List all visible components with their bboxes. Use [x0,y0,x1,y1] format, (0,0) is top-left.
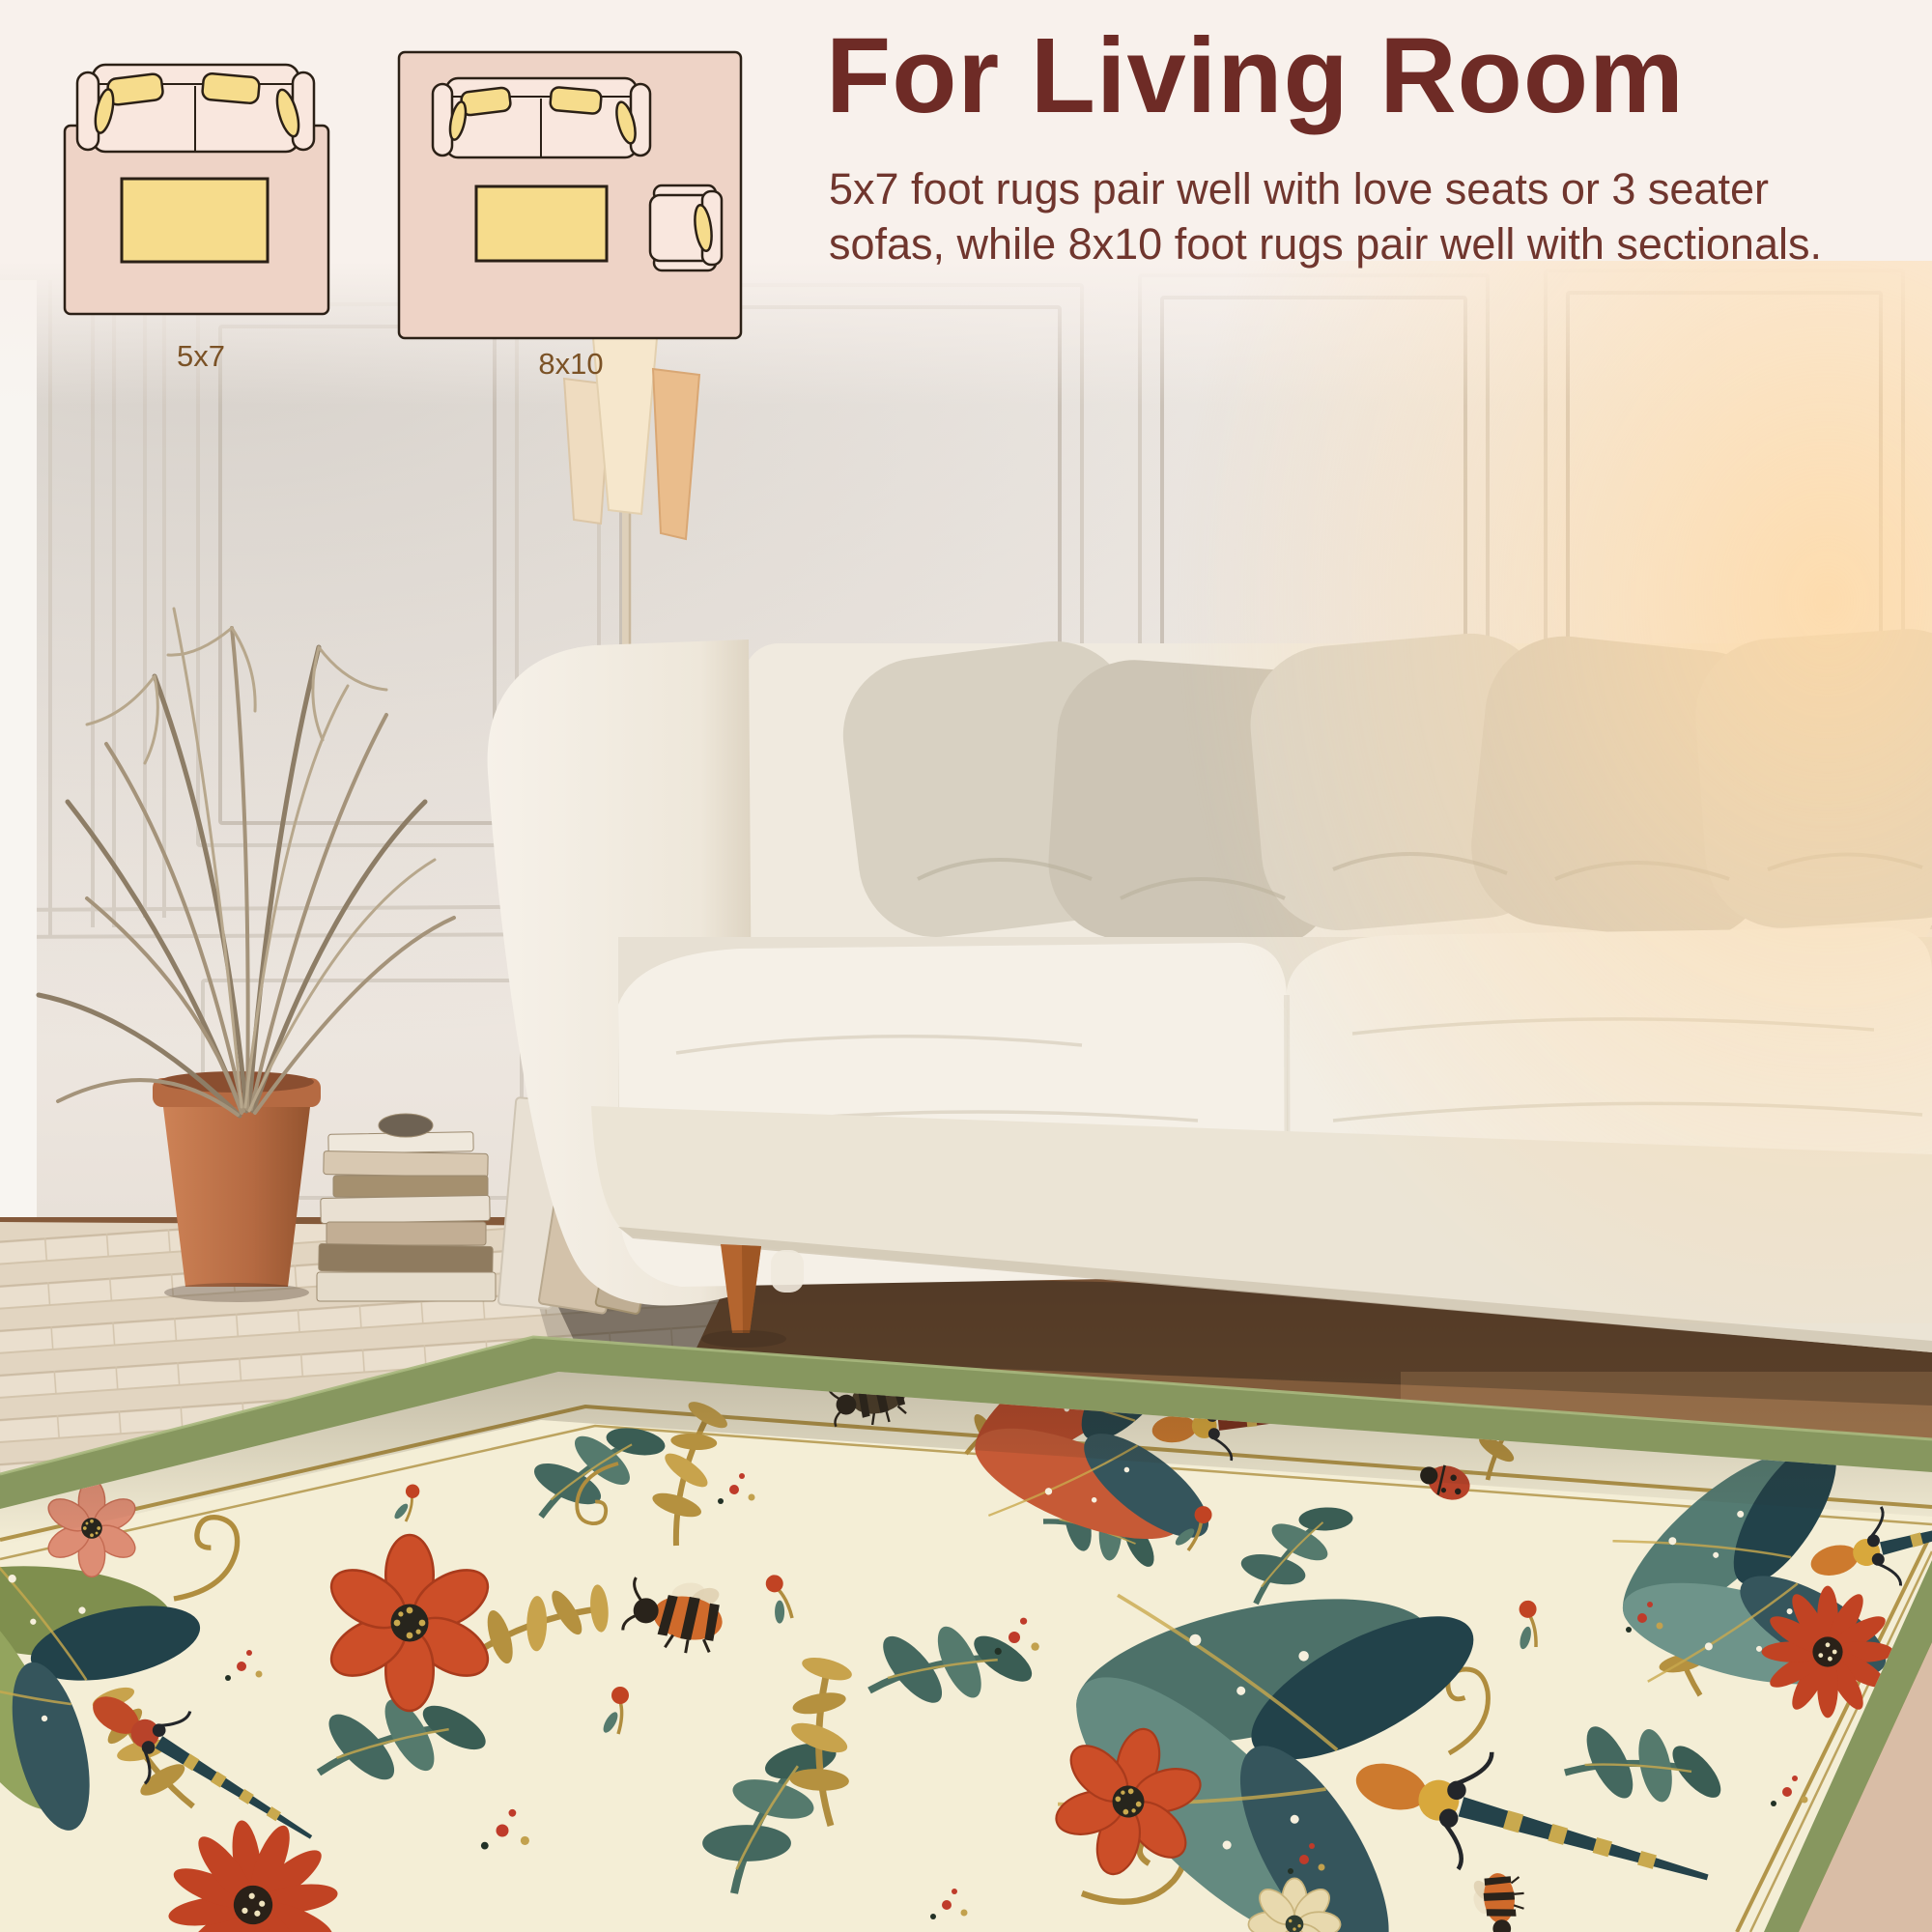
diagram-5x7-graphic [60,41,342,330]
description-text: 5x7 foot rugs pair well with love seats … [829,162,1822,271]
page-title: For Living Room [826,17,1685,134]
door-trim [0,280,37,1246]
sunlight-glow [1063,261,1932,1323]
header-band: 5x7 [0,0,1932,290]
description-line-1: 5x7 foot rugs pair well with love seats … [829,164,1769,213]
stone-ornament [379,1114,433,1137]
diagram-label-8x10: 8x10 [391,347,751,382]
sofa-leg-rear [771,1250,804,1293]
living-room-photo [0,261,1932,1932]
rug-size-diagram-5x7: 5x7 [60,41,342,374]
description-line-2: sofas, while 8x10 foot rugs pair well wi… [829,219,1822,269]
rug-size-diagram-8x10: 8x10 [391,41,751,382]
diagram-label-5x7: 5x7 [60,339,342,374]
book-stack [317,1114,496,1301]
diagram-8x10-graphic [391,41,751,350]
product-infographic: 5x7 [0,0,1932,1932]
